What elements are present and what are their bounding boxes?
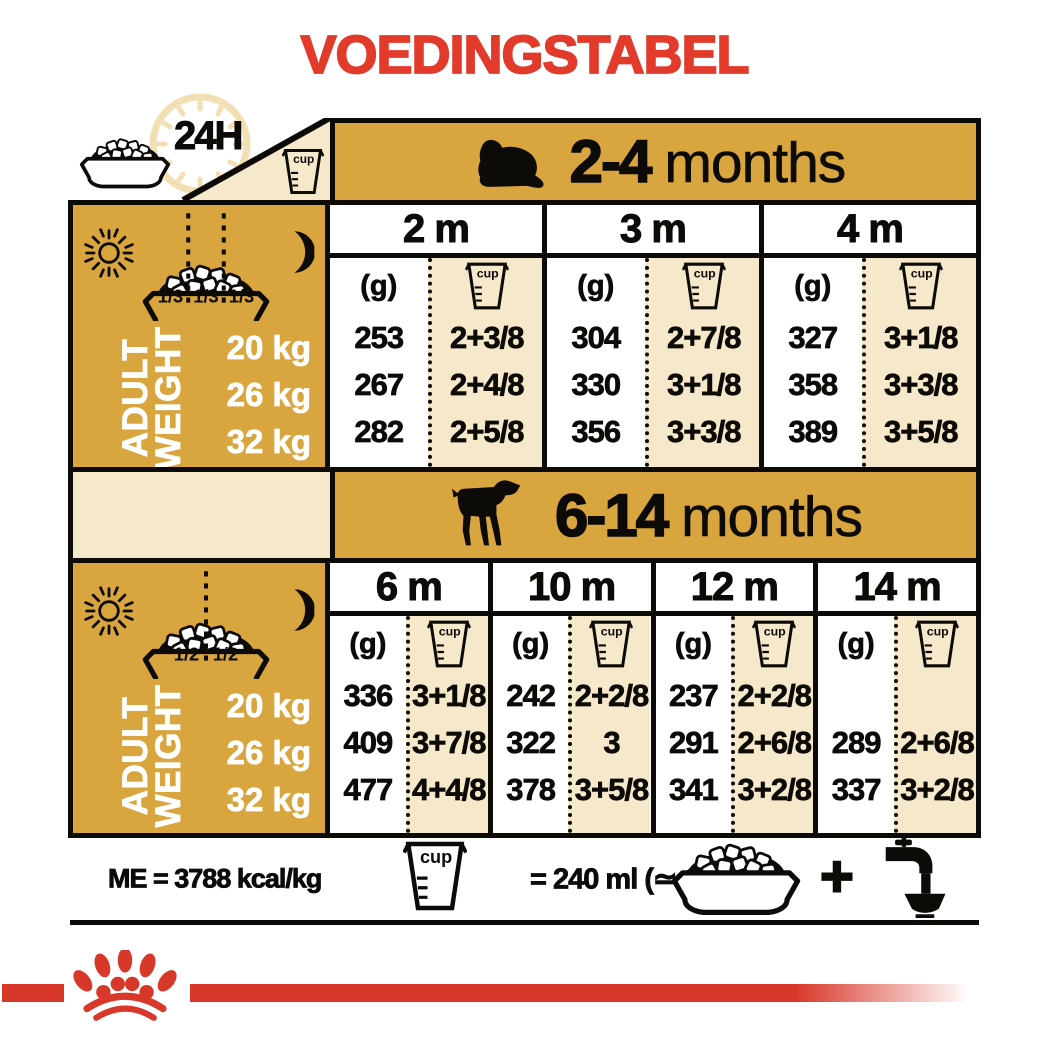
grams-value: 341 <box>656 766 732 813</box>
grams-unit: (g) <box>675 628 712 661</box>
fraction-label: 1/2 <box>213 644 238 665</box>
age-band-text: 6-14months <box>555 481 862 550</box>
cups-value: 2+7/8 <box>649 314 759 361</box>
ration-bowl-halves-icon: 1/2 1/2 <box>137 569 275 679</box>
water-tap-icon <box>866 834 954 918</box>
age-range: 2-4 <box>570 128 651 195</box>
weight-label: 26 kg <box>181 729 311 776</box>
grams-value: 477 <box>330 766 406 813</box>
feeding-sheet: 24H cup 2-4months <box>68 118 981 925</box>
cups-value: 3+5/8 <box>866 408 976 455</box>
measuring-cup-icon: cup <box>752 620 796 668</box>
cups-value <box>898 672 976 719</box>
grams-unit: (g) <box>838 628 875 661</box>
grams-value: 409 <box>330 719 406 766</box>
grams-value: 389 <box>764 408 862 455</box>
feeding-table-page: VOEDINGSTABEL <box>0 0 1049 1049</box>
month-label: 3 m <box>620 207 686 252</box>
cups-subcolumn: cup 2+2/8 3 3+5/8 <box>568 616 650 833</box>
month-header: 6 m <box>330 563 488 616</box>
month-column-6m: 6 m (g) 336 409 477 cup 3+1/8 3+7/8 4+ <box>330 558 493 838</box>
grams-value <box>818 672 894 719</box>
cups-subcolumn: cup 3+1/8 3+7/8 4+4/8 <box>406 616 488 833</box>
cup-text: cup <box>601 624 623 638</box>
age-band-adult: 6-14months <box>330 472 981 558</box>
grams-subcolumn: (g) 336 409 477 <box>330 616 406 833</box>
brand-stripe-right <box>190 984 977 1002</box>
band-row-2: 6-14months <box>68 472 981 558</box>
cups-value: 3+5/8 <box>572 766 650 813</box>
grams-value: 378 <box>493 766 569 813</box>
cups-value: 3+1/8 <box>649 361 759 408</box>
daily-ration-cell: 24H cup <box>68 118 330 200</box>
month-columns-2: 6 m (g) 336 409 477 cup 3+1/8 3+7/8 4+ <box>330 558 981 838</box>
month-column-14m: 14 m (g) 289 337 cup 2+6/8 3+2/8 <box>818 558 981 838</box>
measuring-cup-icon: cup <box>465 262 509 310</box>
cups-value: 3+3/8 <box>649 408 759 455</box>
energy-value-label: ME = 3788 kcal/kg <box>108 864 321 895</box>
bottom-rule <box>70 920 979 925</box>
cups-subcolumn: cup 2+3/8 2+4/8 2+5/8 <box>428 258 542 467</box>
month-label: 2 m <box>403 207 469 252</box>
month-header: 4 m <box>764 205 976 258</box>
grams-value: 322 <box>493 719 569 766</box>
cup-text: cup <box>693 266 715 280</box>
table-6-14-months: 1/2 1/2 ADULT WEIGHT 20 kg 26 kg 32 kg 6… <box>68 558 981 838</box>
cups-value: 2+6/8 <box>898 719 976 766</box>
month-column-4m: 4 m (g) 327 358 389 cup 3+1/8 3+3/8 3+ <box>764 200 981 472</box>
cups-value: 3+1/8 <box>866 314 976 361</box>
month-label: 14 m <box>854 565 941 610</box>
cups-value: 2+3/8 <box>432 314 542 361</box>
month-column-10m: 10 m (g) 242 322 378 cup 2+2/8 3 3+5/8 <box>493 558 656 838</box>
cup-text: cup <box>910 266 932 280</box>
sun-icon <box>81 225 137 281</box>
cups-subcolumn: cup 2+2/8 2+6/8 3+2/8 <box>731 616 813 833</box>
cups-value: 3+2/8 <box>735 766 813 813</box>
measuring-cup-icon: cup <box>427 620 471 668</box>
cups-value: 3 <box>572 719 650 766</box>
cups-subcolumn: cup 2+6/8 3+2/8 <box>894 616 976 833</box>
month-header: 14 m <box>818 563 976 616</box>
grams-value: 242 <box>493 672 569 719</box>
cup-text: cup <box>476 266 498 280</box>
grams-value: 327 <box>764 314 862 361</box>
moon-icon <box>283 229 315 275</box>
month-column-3m: 3 m (g) 304 330 356 cup 2+7/8 3+1/8 3+ <box>547 200 764 472</box>
cup-text: cup <box>438 624 460 638</box>
grams-value: 356 <box>547 408 645 455</box>
measuring-cup-icon: cup <box>589 620 633 668</box>
month-header: 3 m <box>547 205 759 258</box>
grams-value: 237 <box>656 672 732 719</box>
royal-canin-paw-logo <box>68 950 182 1024</box>
food-bowl-icon <box>666 838 806 917</box>
moon-icon <box>283 587 315 633</box>
month-header: 10 m <box>493 563 651 616</box>
grams-value: 304 <box>547 314 645 361</box>
measuring-cup-icon: cup <box>899 262 943 310</box>
cups-subcolumn: cup 2+7/8 3+1/8 3+3/8 <box>645 258 759 467</box>
grams-unit: (g) <box>512 628 549 661</box>
cups-value: 3+7/8 <box>410 719 488 766</box>
measuring-cup-icon: cup <box>403 840 467 912</box>
brand-stripe-left <box>2 984 64 1002</box>
age-band-text: 2-4months <box>570 127 846 196</box>
cups-subcolumn: cup 3+1/8 3+3/8 3+5/8 <box>862 258 976 467</box>
month-label: 6 m <box>376 565 442 610</box>
table-2-4-months: 1/3 1/3 1/3 ADULT WEIGHT 20 kg 26 kg 32 … <box>68 200 981 472</box>
weight-label: 32 kg <box>181 776 311 823</box>
weight-label: 20 kg <box>181 682 311 729</box>
age-band-puppy: 2-4months <box>330 118 981 200</box>
grams-unit: (g) <box>349 628 386 661</box>
cups-value: 2+2/8 <box>572 672 650 719</box>
cups-value: 4+4/8 <box>410 766 488 813</box>
plus-sign: + <box>820 843 854 910</box>
adult-dog-icon <box>449 478 529 552</box>
cups-value: 2+5/8 <box>432 408 542 455</box>
fraction-label: 1/2 <box>174 644 199 665</box>
weight-rows: 20 kg 26 kg 32 kg <box>181 682 311 823</box>
page-title: VOEDINGSTABEL <box>0 24 1049 86</box>
cups-value: 3+3/8 <box>866 361 976 408</box>
month-header: 2 m <box>330 205 542 258</box>
empty-cell <box>68 472 330 558</box>
months-word: months <box>681 485 862 549</box>
band-row-1: 24H cup 2-4months <box>68 118 981 200</box>
grams-value: 289 <box>818 719 894 766</box>
ration-bowl-thirds-icon: 1/3 1/3 1/3 <box>137 211 275 321</box>
month-column-2m: 2 m (g) 253 267 282 cup 2+3/8 2+4/8 2+ <box>330 200 547 472</box>
weight-label: 20 kg <box>181 324 311 371</box>
grams-subcolumn: (g) 289 337 <box>818 616 894 833</box>
grams-value: 330 <box>547 361 645 408</box>
footer-info: ME = 3788 kcal/kg cup = 240 ml (≃ 105 g)… <box>68 838 981 920</box>
grams-subcolumn: (g) 253 267 282 <box>330 258 428 467</box>
measuring-cup-icon: cup <box>682 262 726 310</box>
grams-unit: (g) <box>577 270 614 303</box>
month-header: 12 m <box>656 563 814 616</box>
cup-text: cup <box>293 152 314 166</box>
measuring-cup-icon: cup <box>915 620 959 668</box>
grams-value: 253 <box>330 314 428 361</box>
month-label: 12 m <box>691 565 778 610</box>
grams-value: 267 <box>330 361 428 408</box>
grams-value: 282 <box>330 408 428 455</box>
cup-text: cup <box>420 847 452 867</box>
cups-value: 2+6/8 <box>735 719 813 766</box>
weight-rows: 20 kg 26 kg 32 kg <box>181 324 311 465</box>
grams-subcolumn: (g) 327 358 389 <box>764 258 862 467</box>
weight-label: 26 kg <box>181 371 311 418</box>
cup-text: cup <box>927 624 949 638</box>
fraction-label: 1/3 <box>158 286 183 307</box>
measuring-cup-icon: cup <box>282 148 324 195</box>
adult-weight-sidebar-2: 1/2 1/2 ADULT WEIGHT 20 kg 26 kg 32 kg <box>68 558 330 838</box>
cups-value: 3+2/8 <box>898 766 976 813</box>
grams-unit: (g) <box>794 270 831 303</box>
weight-label: 32 kg <box>181 418 311 465</box>
grams-subcolumn: (g) 242 322 378 <box>493 616 569 833</box>
fraction-label: 1/3 <box>229 286 254 307</box>
grams-value: 358 <box>764 361 862 408</box>
grams-value: 291 <box>656 719 732 766</box>
month-columns-1: 2 m (g) 253 267 282 cup 2+3/8 2+4/8 2+ <box>330 200 981 472</box>
grams-unit: (g) <box>360 270 397 303</box>
sun-icon <box>81 583 137 639</box>
month-column-12m: 12 m (g) 237 291 341 cup 2+2/8 2+6/8 3 <box>656 558 819 838</box>
month-label: 10 m <box>528 565 615 610</box>
fraction-label: 1/3 <box>193 286 218 307</box>
adult-weight-sidebar-1: 1/3 1/3 1/3 ADULT WEIGHT 20 kg 26 kg 32 … <box>68 200 330 472</box>
grams-value: 336 <box>330 672 406 719</box>
months-word: months <box>664 131 845 195</box>
month-label: 4 m <box>837 207 903 252</box>
cups-value: 2+2/8 <box>735 672 813 719</box>
grams-value: 337 <box>818 766 894 813</box>
grams-subcolumn: (g) 237 291 341 <box>656 616 732 833</box>
adult-weight-label: ADULT WEIGHT <box>119 681 189 831</box>
grams-subcolumn: (g) 304 330 356 <box>547 258 645 467</box>
cups-value: 3+1/8 <box>410 672 488 719</box>
age-range: 6-14 <box>555 482 667 549</box>
puppy-icon <box>466 130 544 194</box>
cups-value: 2+4/8 <box>432 361 542 408</box>
adult-weight-label: ADULT WEIGHT <box>119 323 189 472</box>
cup-text: cup <box>764 624 786 638</box>
